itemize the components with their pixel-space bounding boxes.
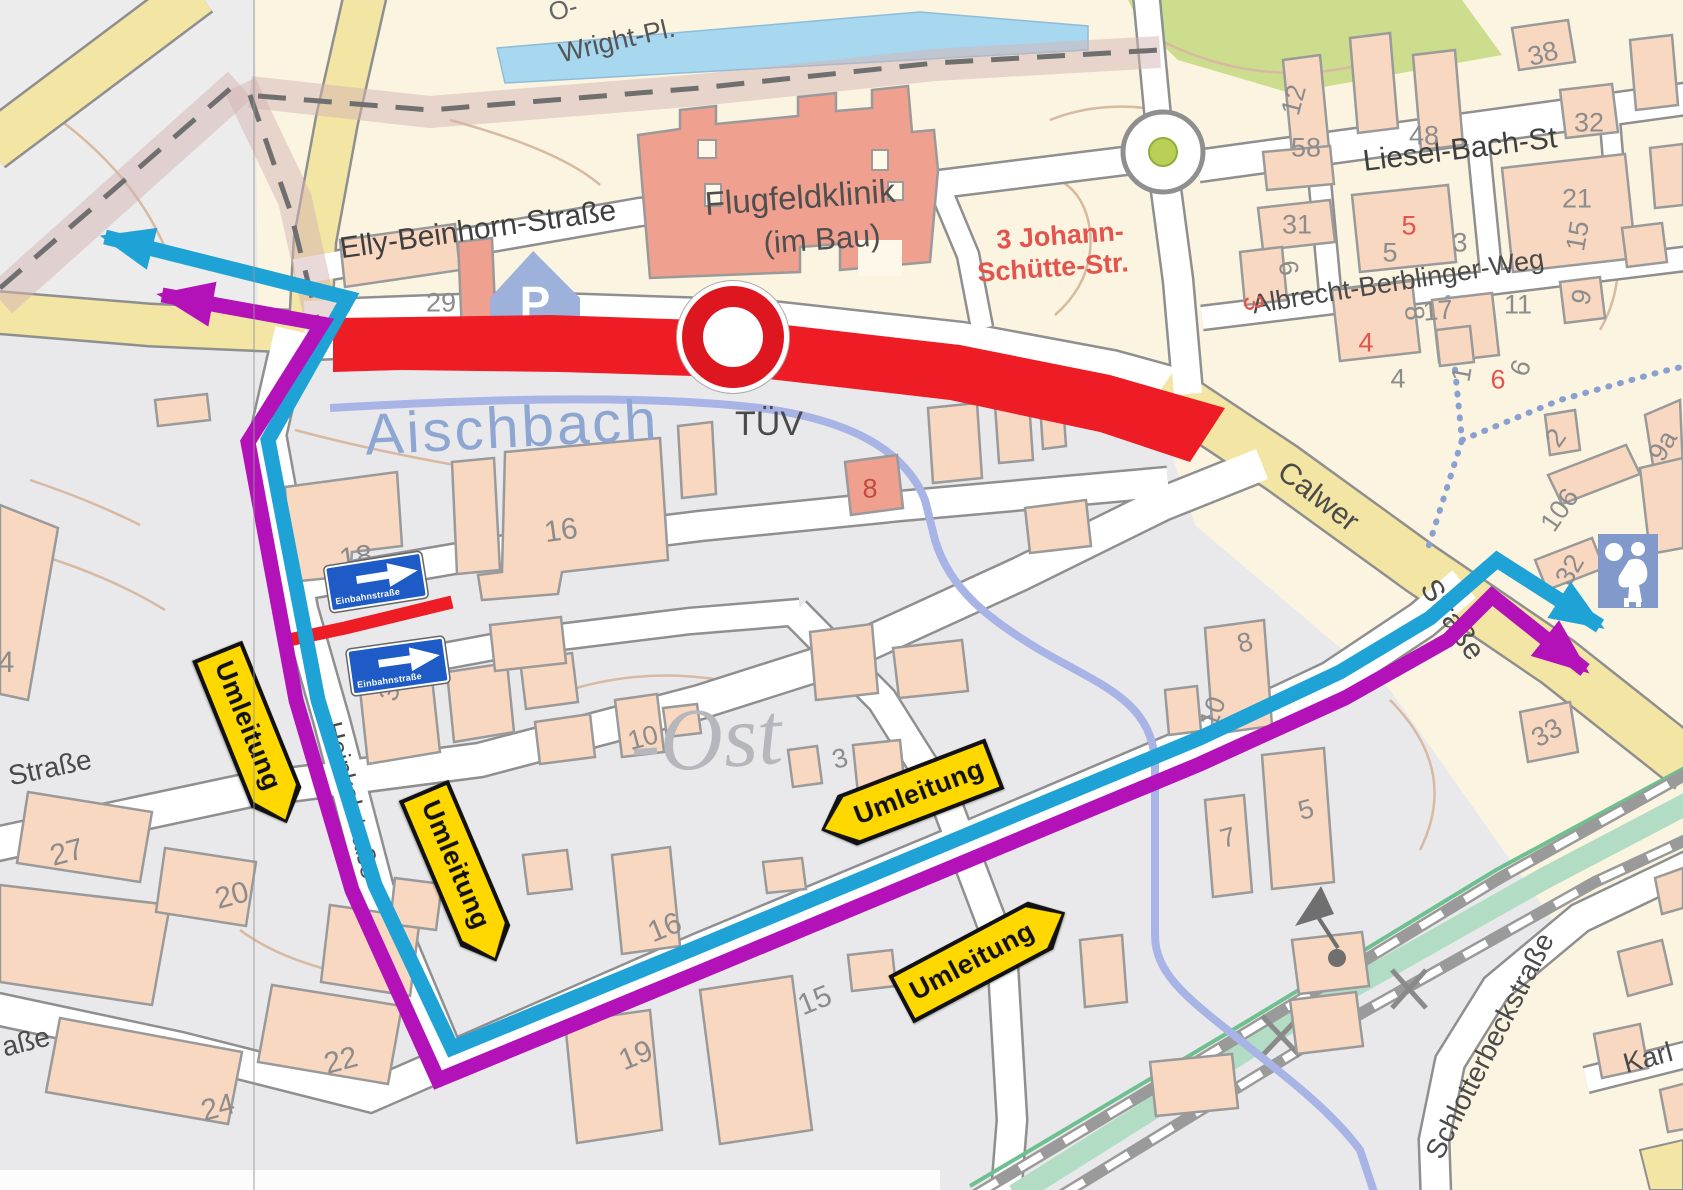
road (1478, 140, 1492, 282)
building (1040, 403, 1066, 449)
building (612, 847, 680, 954)
building (452, 458, 500, 574)
building (700, 976, 812, 1144)
building (1560, 84, 1618, 138)
sheet-edge (0, 1170, 940, 1190)
building (1545, 410, 1580, 455)
building (1205, 620, 1272, 734)
building (155, 394, 210, 426)
building (390, 878, 442, 930)
building (1165, 686, 1201, 735)
building (458, 238, 496, 333)
building (1502, 154, 1636, 272)
building (1520, 702, 1578, 762)
building (1258, 200, 1335, 250)
building (1436, 326, 1474, 366)
building (1622, 223, 1667, 267)
building (1283, 55, 1329, 152)
building (447, 663, 514, 742)
building (1263, 146, 1334, 190)
detour-map: O-Wright-Pl.Elly-Beinhorn-StraßeFlugfeld… (0, 0, 1683, 1190)
building (1205, 795, 1252, 897)
roundabout (1123, 112, 1203, 192)
building (1512, 20, 1575, 70)
building (1332, 281, 1420, 361)
building (928, 403, 982, 483)
building (1290, 992, 1363, 1054)
building (1413, 50, 1463, 150)
building (810, 624, 878, 700)
building (1650, 144, 1683, 208)
building (995, 402, 1033, 463)
building (1262, 748, 1334, 889)
building (663, 704, 701, 737)
road (0, 312, 310, 332)
building (853, 740, 905, 794)
building (1240, 247, 1287, 305)
building (565, 1010, 662, 1143)
map-fold-line (253, 0, 255, 1190)
building (1630, 35, 1678, 110)
building (1350, 33, 1398, 133)
station-dot (1328, 949, 1346, 967)
building (848, 950, 896, 991)
building (1080, 935, 1127, 1007)
building (490, 617, 566, 671)
building (1150, 1054, 1238, 1116)
building (360, 678, 440, 764)
building (156, 848, 256, 926)
building (523, 850, 572, 894)
building (1352, 185, 1456, 272)
building (763, 858, 806, 893)
building (788, 746, 822, 787)
building (893, 640, 968, 698)
building (1594, 1024, 1648, 1078)
building (1560, 277, 1605, 323)
building (615, 694, 664, 757)
building (678, 422, 716, 498)
building (845, 455, 903, 515)
building (1025, 500, 1091, 553)
building (535, 714, 595, 764)
building (0, 885, 170, 1005)
